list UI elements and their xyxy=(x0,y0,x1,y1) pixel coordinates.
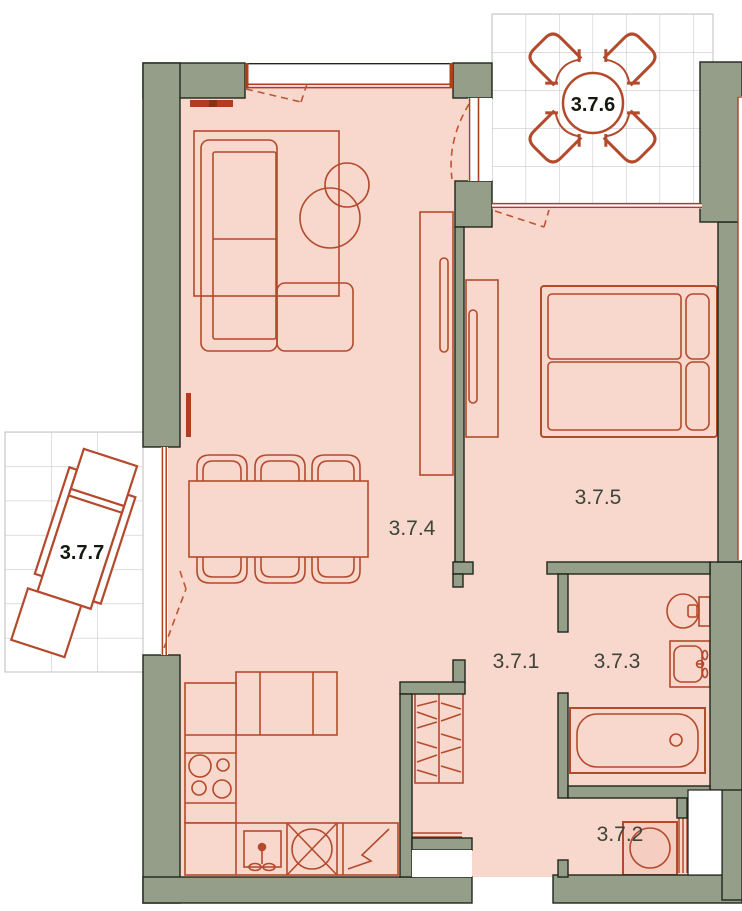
wall xyxy=(677,798,687,818)
wall xyxy=(722,788,742,900)
room-label-3-7-4: 3.7.4 xyxy=(389,517,436,540)
room-label-3-7-5: 3.7.5 xyxy=(575,486,622,509)
room-label-3-7-7: 3.7.7 xyxy=(60,542,104,564)
balcony-door xyxy=(468,98,492,181)
living-window xyxy=(245,63,453,88)
wall xyxy=(143,63,180,447)
wall xyxy=(547,562,710,574)
dining-table-icon xyxy=(189,481,368,557)
wall xyxy=(453,63,492,98)
wall xyxy=(143,655,180,903)
wall xyxy=(700,62,742,222)
wall xyxy=(412,838,472,850)
room-label-3-7-6: 3.7.6 xyxy=(571,94,615,116)
wall xyxy=(400,682,465,694)
bedroom-window xyxy=(492,203,702,209)
wall xyxy=(558,693,568,798)
wardrobe-hatched-icon xyxy=(415,693,463,783)
floor-plan-drawing: 3.7.4 3.7.5 3.7.1 3.7.3 3.7.2 3.7.6 3.7.… xyxy=(0,0,742,911)
floor-plan: 3.7.4 3.7.5 3.7.1 3.7.3 3.7.2 3.7.6 3.7.… xyxy=(0,0,742,911)
wall xyxy=(710,562,742,790)
wall xyxy=(453,562,473,574)
wall xyxy=(453,574,463,587)
shaft xyxy=(688,790,722,875)
room-label-3-7-3: 3.7.3 xyxy=(594,650,641,673)
wall xyxy=(558,860,568,877)
wall xyxy=(453,660,465,683)
entrance-notch xyxy=(412,850,472,877)
wall xyxy=(143,877,472,903)
wall xyxy=(400,694,412,877)
balcony-left-glazing xyxy=(161,447,168,655)
wall xyxy=(553,875,742,903)
wall xyxy=(455,227,464,562)
wall xyxy=(455,181,492,227)
room-label-3-7-2: 3.7.2 xyxy=(597,823,644,846)
neighbour-sliver xyxy=(738,96,742,560)
wall xyxy=(558,574,568,632)
room-label-3-7-1: 3.7.1 xyxy=(493,650,540,673)
